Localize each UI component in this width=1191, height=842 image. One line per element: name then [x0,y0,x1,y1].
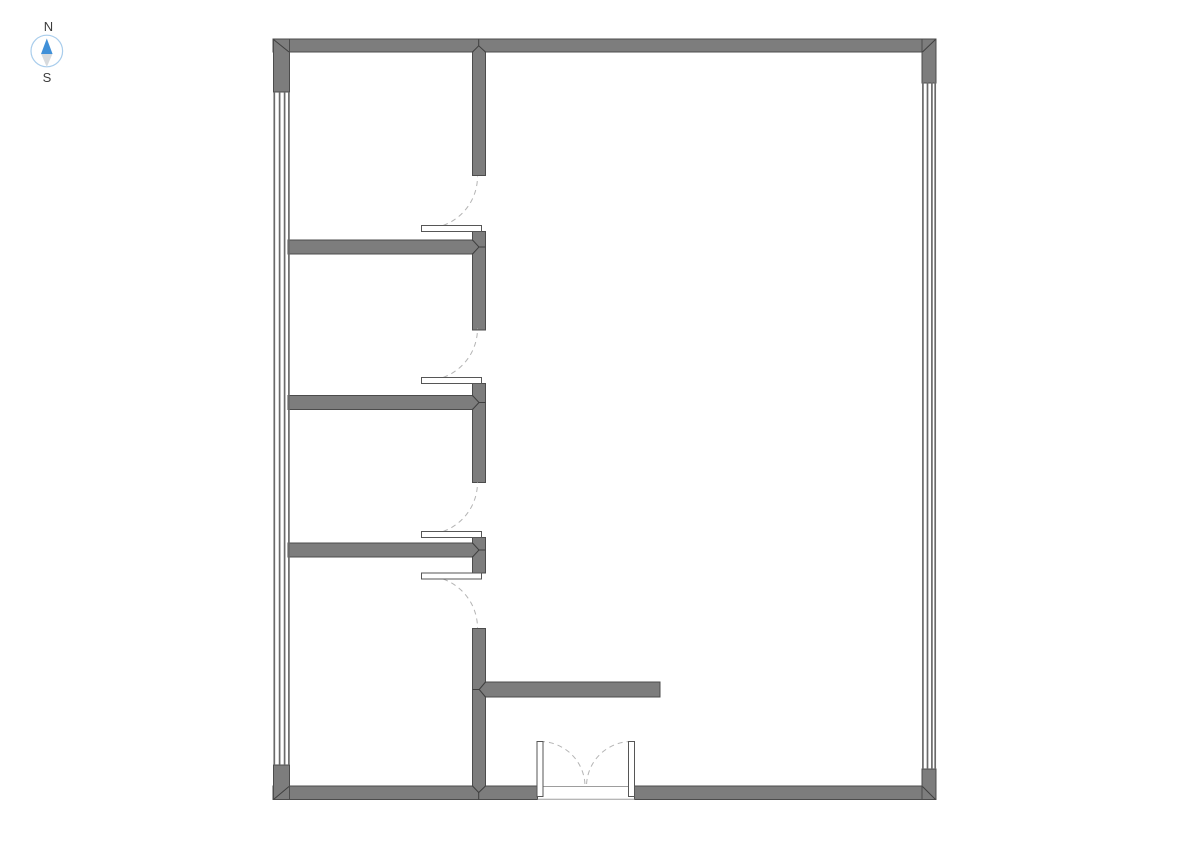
wall-interior-vertical-3 [473,384,486,483]
door-room-4-leaf [422,573,482,579]
wall-interior-horizontal-2 [288,396,473,410]
wall-exterior-top [273,39,936,52]
wall-interior-vertical-5 [473,629,486,787]
door-room-3-swing-arc [426,483,478,535]
floor-plan [0,0,1191,842]
entrance-door-right-leaf [629,742,635,797]
wall-join-patch-tee-2 [472,396,473,409]
wall-pier-left-bottom [274,765,290,800]
door-room-3-leaf [422,532,482,538]
compass-needle-south-icon [41,54,52,67]
compass-north-label: N [44,19,53,34]
compass-south-label: S [43,70,52,85]
wall-pier-left-top [274,39,290,92]
compass-needle-north-icon [41,39,53,55]
floor-plan-canvas: N S [0,0,1191,842]
wall-join-patch-bottom [473,785,485,786]
door-room-1-swing-arc [426,177,478,229]
entrance-door-right-swing-arc [587,742,632,787]
door-room-1-leaf [422,226,482,232]
door-room-2-leaf [422,378,482,384]
wall-interior-stub [486,682,661,697]
wall-exterior-bottom-left [273,786,538,800]
entrance-door-left-leaf [537,742,543,797]
wall-join-patch-top [473,51,485,52]
wall-join-patch-stub [485,683,486,697]
wall-interior-horizontal-3 [288,543,473,557]
wall-interior-horizontal-1 [288,240,473,254]
wall-join-patch-tee-3 [472,544,473,557]
wall-join-patch-tee-1 [472,241,473,254]
entrance-door-left-swing-arc [540,742,585,787]
wall-exterior-bottom-right [635,786,937,800]
wall-pier-right-bottom [922,769,936,800]
wall-interior-vertical-1 [473,52,486,176]
door-room-2-swing-arc [426,329,478,381]
compass: N S [0,0,96,96]
door-room-4-swing-arc [426,576,478,628]
